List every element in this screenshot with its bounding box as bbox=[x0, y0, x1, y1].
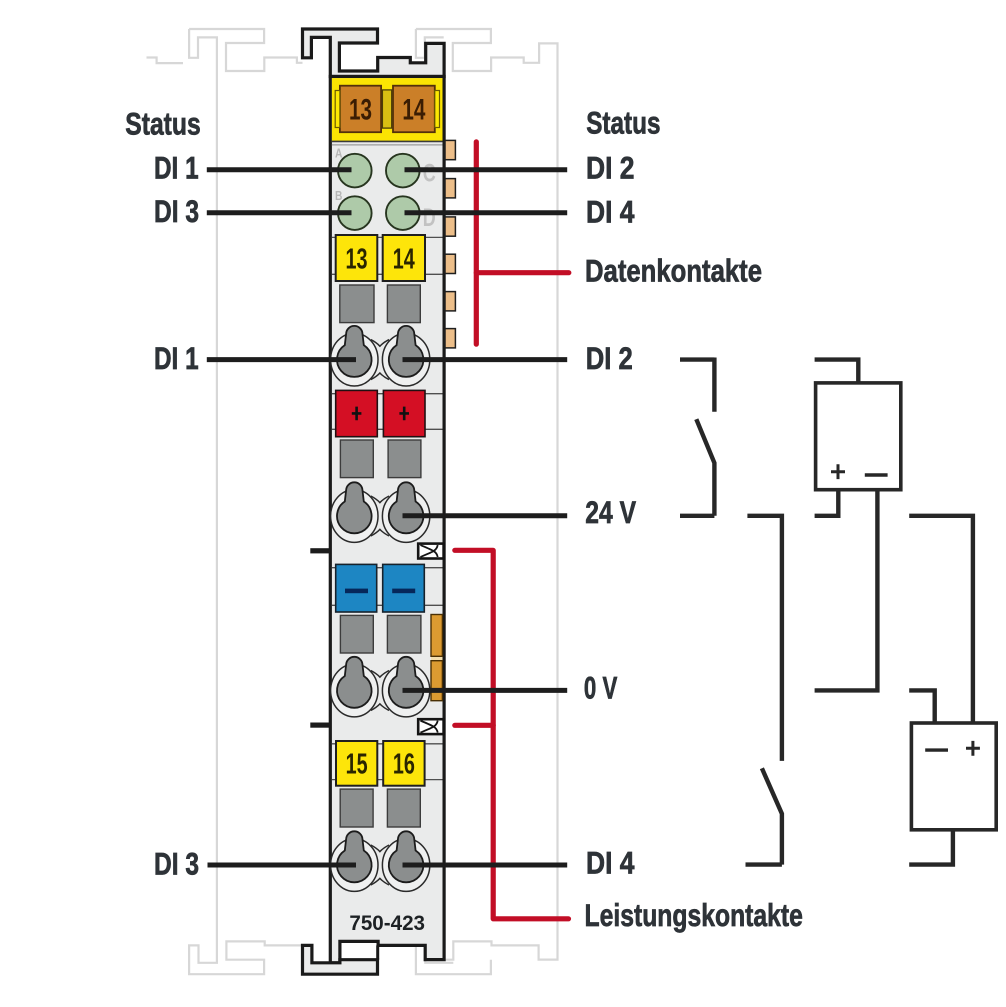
svg-text:A: A bbox=[335, 146, 343, 161]
svg-text:DI 1: DI 1 bbox=[154, 340, 199, 376]
svg-text:DI 3: DI 3 bbox=[154, 845, 199, 881]
svg-text:13: 13 bbox=[346, 243, 368, 275]
svg-text:Status: Status bbox=[586, 104, 660, 140]
svg-text:0 V: 0 V bbox=[584, 670, 617, 706]
svg-text:DI 2: DI 2 bbox=[586, 149, 635, 185]
svg-text:D: D bbox=[423, 204, 436, 232]
svg-text:15: 15 bbox=[346, 749, 368, 781]
svg-text:13: 13 bbox=[349, 94, 372, 127]
svg-text:24 V: 24 V bbox=[585, 494, 636, 530]
svg-text:750-423: 750-423 bbox=[349, 911, 425, 935]
svg-text:Leistungskontakte: Leistungskontakte bbox=[585, 897, 803, 933]
svg-text:DI 2: DI 2 bbox=[586, 340, 633, 376]
svg-text:C: C bbox=[423, 160, 436, 188]
svg-text:DI 4: DI 4 bbox=[586, 844, 635, 880]
svg-text:Datenkontakte: Datenkontakte bbox=[585, 252, 762, 288]
svg-text:16: 16 bbox=[393, 749, 415, 781]
svg-text:14: 14 bbox=[393, 243, 415, 275]
svg-text:B: B bbox=[335, 188, 342, 203]
svg-text:DI 4: DI 4 bbox=[586, 193, 635, 229]
svg-text:DI 1: DI 1 bbox=[154, 149, 199, 185]
svg-text:14: 14 bbox=[402, 94, 425, 127]
svg-text:Status: Status bbox=[125, 106, 200, 142]
svg-text:DI 3: DI 3 bbox=[154, 193, 199, 229]
